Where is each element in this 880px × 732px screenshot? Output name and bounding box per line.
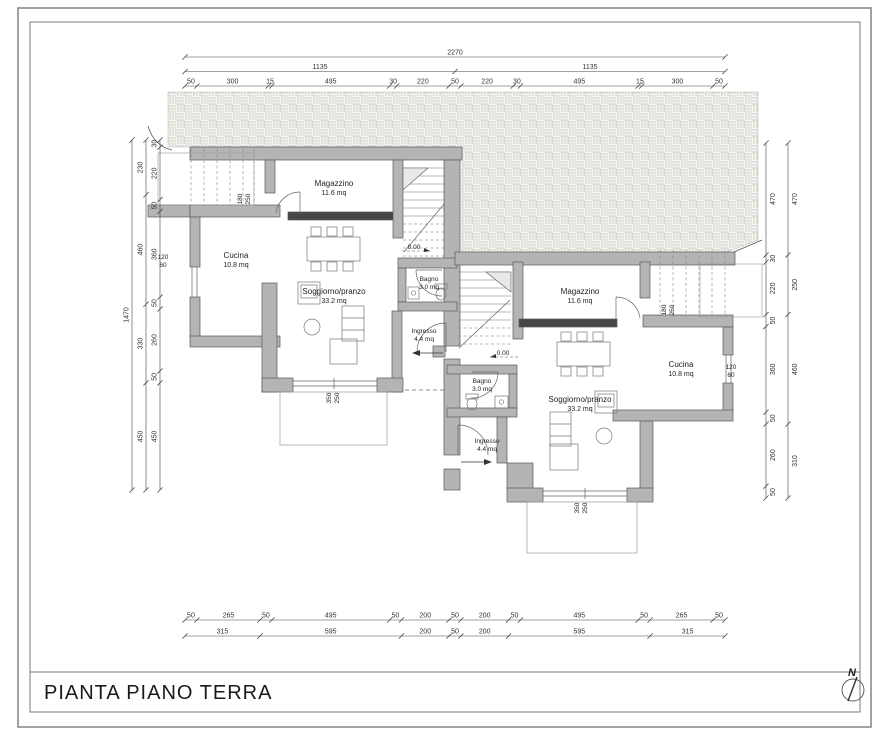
dimension-label: 50	[152, 299, 159, 307]
dimension-label: 260	[770, 449, 777, 461]
room-area: 33.2 mq	[321, 298, 346, 305]
door-dim: 250	[669, 304, 676, 315]
dim-strip-bottom-row1: 50265504955020050200504955026550	[182, 613, 727, 623]
page-title: PIANTA PIANO TERRA	[44, 682, 272, 704]
dimension-label: 315	[682, 629, 694, 636]
room-label: Soggiorno/pranzo	[548, 395, 612, 404]
stair-internal-right	[458, 272, 511, 348]
dimension-label: 460	[138, 244, 145, 256]
room-label: Soggiorno/pranzo	[302, 287, 366, 296]
door-dim: 180	[237, 193, 244, 204]
dimension-label: 265	[223, 613, 235, 620]
dimension-label: 50	[770, 414, 777, 422]
title-block: PIANTA PIANO TERRA N	[30, 667, 864, 704]
north-label: N	[848, 667, 857, 679]
dim-strip-top-segments: 50300154953022050220304951530050	[182, 79, 727, 89]
dim-strip-top-halves: 11351135	[182, 64, 727, 74]
room-area: 4.4 mq	[477, 446, 497, 453]
dimension-label: 470	[792, 193, 799, 205]
dimension-label: 300	[227, 79, 239, 86]
dimension-label: 450	[152, 430, 159, 442]
dim-strip-right-inner: 47030220503605026050	[763, 140, 777, 500]
dimension-label: 30	[152, 140, 159, 148]
stair-arrow-left	[403, 168, 428, 190]
dimension-label: 220	[770, 282, 777, 294]
level-mark: 0.00	[497, 350, 510, 357]
room-area: 33.2 mq	[567, 406, 592, 413]
dimension-label: 50	[187, 79, 195, 86]
dimension-label: 360	[770, 363, 777, 375]
dimension-label: 15	[636, 79, 644, 86]
window-dim: 250	[582, 502, 589, 513]
dimension-label: 30	[389, 79, 397, 86]
dimension-label: 50	[152, 201, 159, 209]
dimension-label: 50	[451, 79, 459, 86]
level-mark: 0.00	[408, 244, 421, 251]
room-label: Magazzino	[315, 179, 354, 188]
partition-magazzino-right	[519, 319, 617, 327]
window-dim: 60	[159, 262, 167, 269]
walls-left	[148, 147, 462, 490]
room-area: 4.4 mq	[414, 336, 434, 343]
dimension-label: 15	[266, 79, 274, 86]
partition-magazzino-left	[288, 212, 393, 220]
dimension-label: 220	[152, 167, 159, 179]
window-terrace-right	[543, 488, 627, 499]
dimension-label: 1135	[582, 64, 597, 71]
window-dim: 120	[726, 364, 737, 371]
window-terrace-left	[293, 378, 377, 389]
dimension-label: 200	[419, 613, 431, 620]
dimension-label: 495	[573, 79, 585, 86]
dimension-label: 495	[573, 613, 585, 620]
dim-strip-left-outer: 230460330450	[138, 137, 149, 492]
dimension-label: 220	[417, 79, 429, 86]
dimension-label: 200	[419, 629, 431, 636]
unit-right: Magazzino 11.6 mq Cucina 10.8 mq Soggior…	[447, 250, 762, 553]
stair-arrow-right	[486, 272, 511, 292]
dimension-label: 265	[676, 613, 688, 620]
dimension-label: 250	[792, 279, 799, 291]
room-label: Cucina	[669, 360, 694, 369]
dimension-label: 30	[513, 79, 521, 86]
room-label: Cucina	[224, 251, 249, 260]
dimension-label: 1135	[312, 64, 327, 71]
side-table-right	[596, 428, 612, 444]
dimension-label: 495	[325, 613, 337, 620]
sofa-right	[550, 412, 571, 446]
dimension-label: 50	[715, 79, 723, 86]
dim-strip-left-total: 1470	[124, 137, 135, 492]
drawing-sheet: Magazzino 11.6 mq Cucina 10.8 mq Soggior…	[0, 0, 880, 732]
dim-strip-bottom-row2: 31559520050200595315	[182, 629, 727, 639]
sink-right	[495, 396, 508, 408]
dining-table-right	[557, 342, 610, 366]
dimension-label: 230	[138, 161, 145, 173]
dimension-label: 50	[392, 613, 400, 620]
room-area: 11.6 mq	[568, 298, 593, 305]
window-dim: 350	[574, 502, 581, 513]
dimension-label: 1470	[124, 307, 131, 323]
sink-left	[408, 287, 419, 299]
dimension-label: 310	[792, 455, 799, 467]
dimension-label: 260	[152, 334, 159, 346]
dimension-label: 360	[152, 248, 159, 260]
room-label: Magazzino	[561, 287, 600, 296]
dimension-label: 330	[138, 338, 145, 350]
entry-arrow-left	[412, 350, 420, 356]
dimension-label: 220	[481, 79, 493, 86]
room-area: 3.0 mq	[419, 284, 439, 291]
dimension-label: 30	[770, 255, 777, 263]
dimension-label: 595	[573, 629, 585, 636]
dimension-label: 50	[152, 373, 159, 381]
dimension-label: 2270	[447, 50, 463, 57]
window-dim: 350	[326, 392, 333, 403]
dim-strip-left-inner: 30220503605026050450	[152, 137, 163, 492]
dim-strip-right-outer: 470250460310	[785, 140, 799, 500]
door-magazzino-right	[616, 297, 640, 319]
stair-internal-left	[403, 168, 445, 256]
floor-plan-svg: Magazzino 11.6 mq Cucina 10.8 mq Soggior…	[0, 0, 880, 732]
window-dim: 250	[334, 392, 341, 403]
unit-left: Magazzino 11.6 mq Cucina 10.8 mq Soggior…	[148, 147, 462, 490]
window-dim: 120	[158, 254, 169, 261]
dimension-label: 50	[770, 488, 777, 496]
door-bagno-left	[416, 270, 442, 296]
dimension-label: 50	[451, 613, 459, 620]
dimension-label: 470	[770, 193, 777, 205]
dimension-label: 50	[262, 613, 270, 620]
room-label: Bagno	[420, 276, 439, 283]
dimension-label: 300	[672, 79, 684, 86]
dimension-label: 200	[479, 613, 491, 620]
dimension-label: 495	[325, 79, 337, 86]
dimension-label: 50	[187, 613, 195, 620]
dimension-label: 50	[511, 613, 519, 620]
dimension-label: 50	[715, 613, 723, 620]
room-label: Ingresso	[412, 328, 437, 335]
dimension-label: 315	[217, 629, 229, 636]
dimension-label: 595	[325, 629, 337, 636]
room-area: 11.6 mq	[322, 190, 347, 197]
room-area: 10.8 mq	[223, 262, 248, 269]
dimension-label: 50	[640, 613, 648, 620]
dimension-label: 200	[479, 629, 491, 636]
room-label: Ingresso	[475, 438, 500, 445]
window-cucina-left	[192, 267, 197, 297]
sofa-left	[342, 306, 364, 341]
door-dim: 250	[245, 193, 252, 204]
room-area: 3.0 mq	[472, 386, 492, 393]
dimension-label: 50	[451, 629, 459, 636]
dining-table-left	[307, 237, 360, 261]
dimension-label: 50	[770, 317, 777, 325]
side-table-left	[304, 319, 320, 335]
dim-strip-top-total: 2270	[182, 50, 727, 60]
room-label: Bagno	[473, 378, 492, 385]
dimension-label: 450	[138, 430, 145, 442]
dimension-label: 460	[792, 363, 799, 375]
door-dim: 180	[661, 304, 668, 315]
room-area: 10.8 mq	[668, 371, 693, 378]
window-dim: 60	[727, 372, 735, 379]
entry-arrow-right	[484, 459, 492, 465]
